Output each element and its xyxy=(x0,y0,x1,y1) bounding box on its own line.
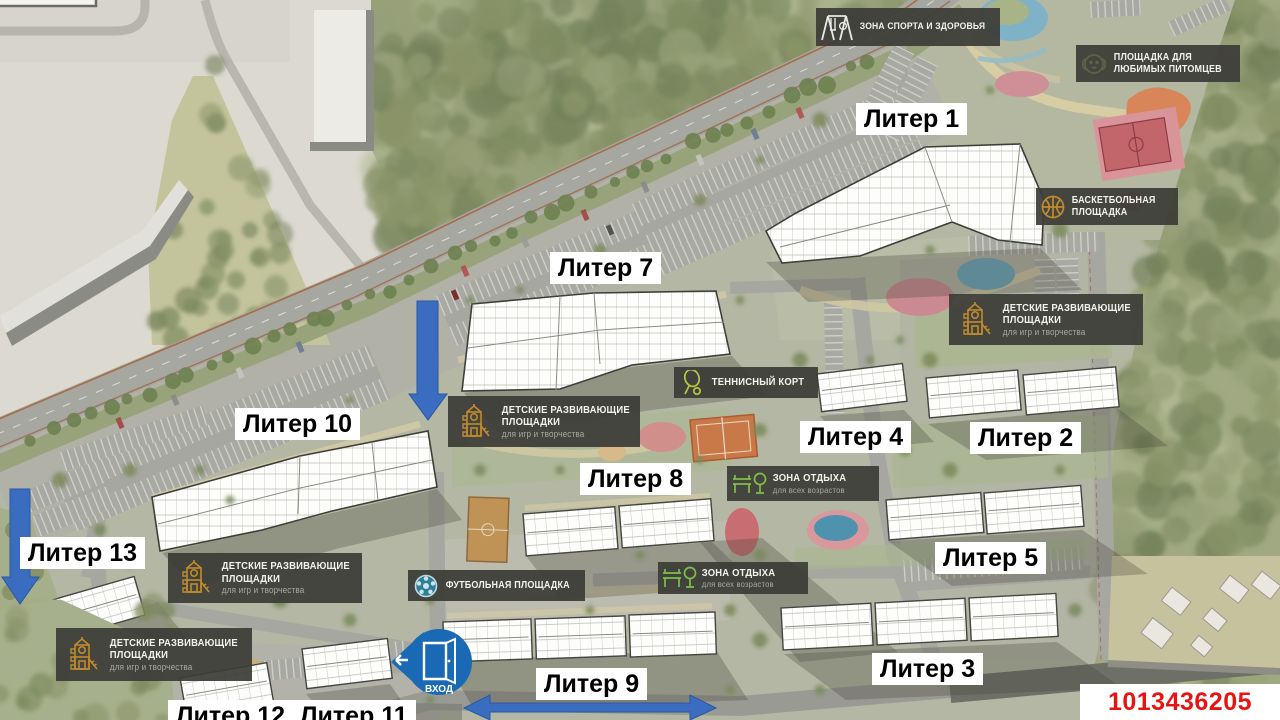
svg-text:ВХОД: ВХОД xyxy=(425,684,453,695)
